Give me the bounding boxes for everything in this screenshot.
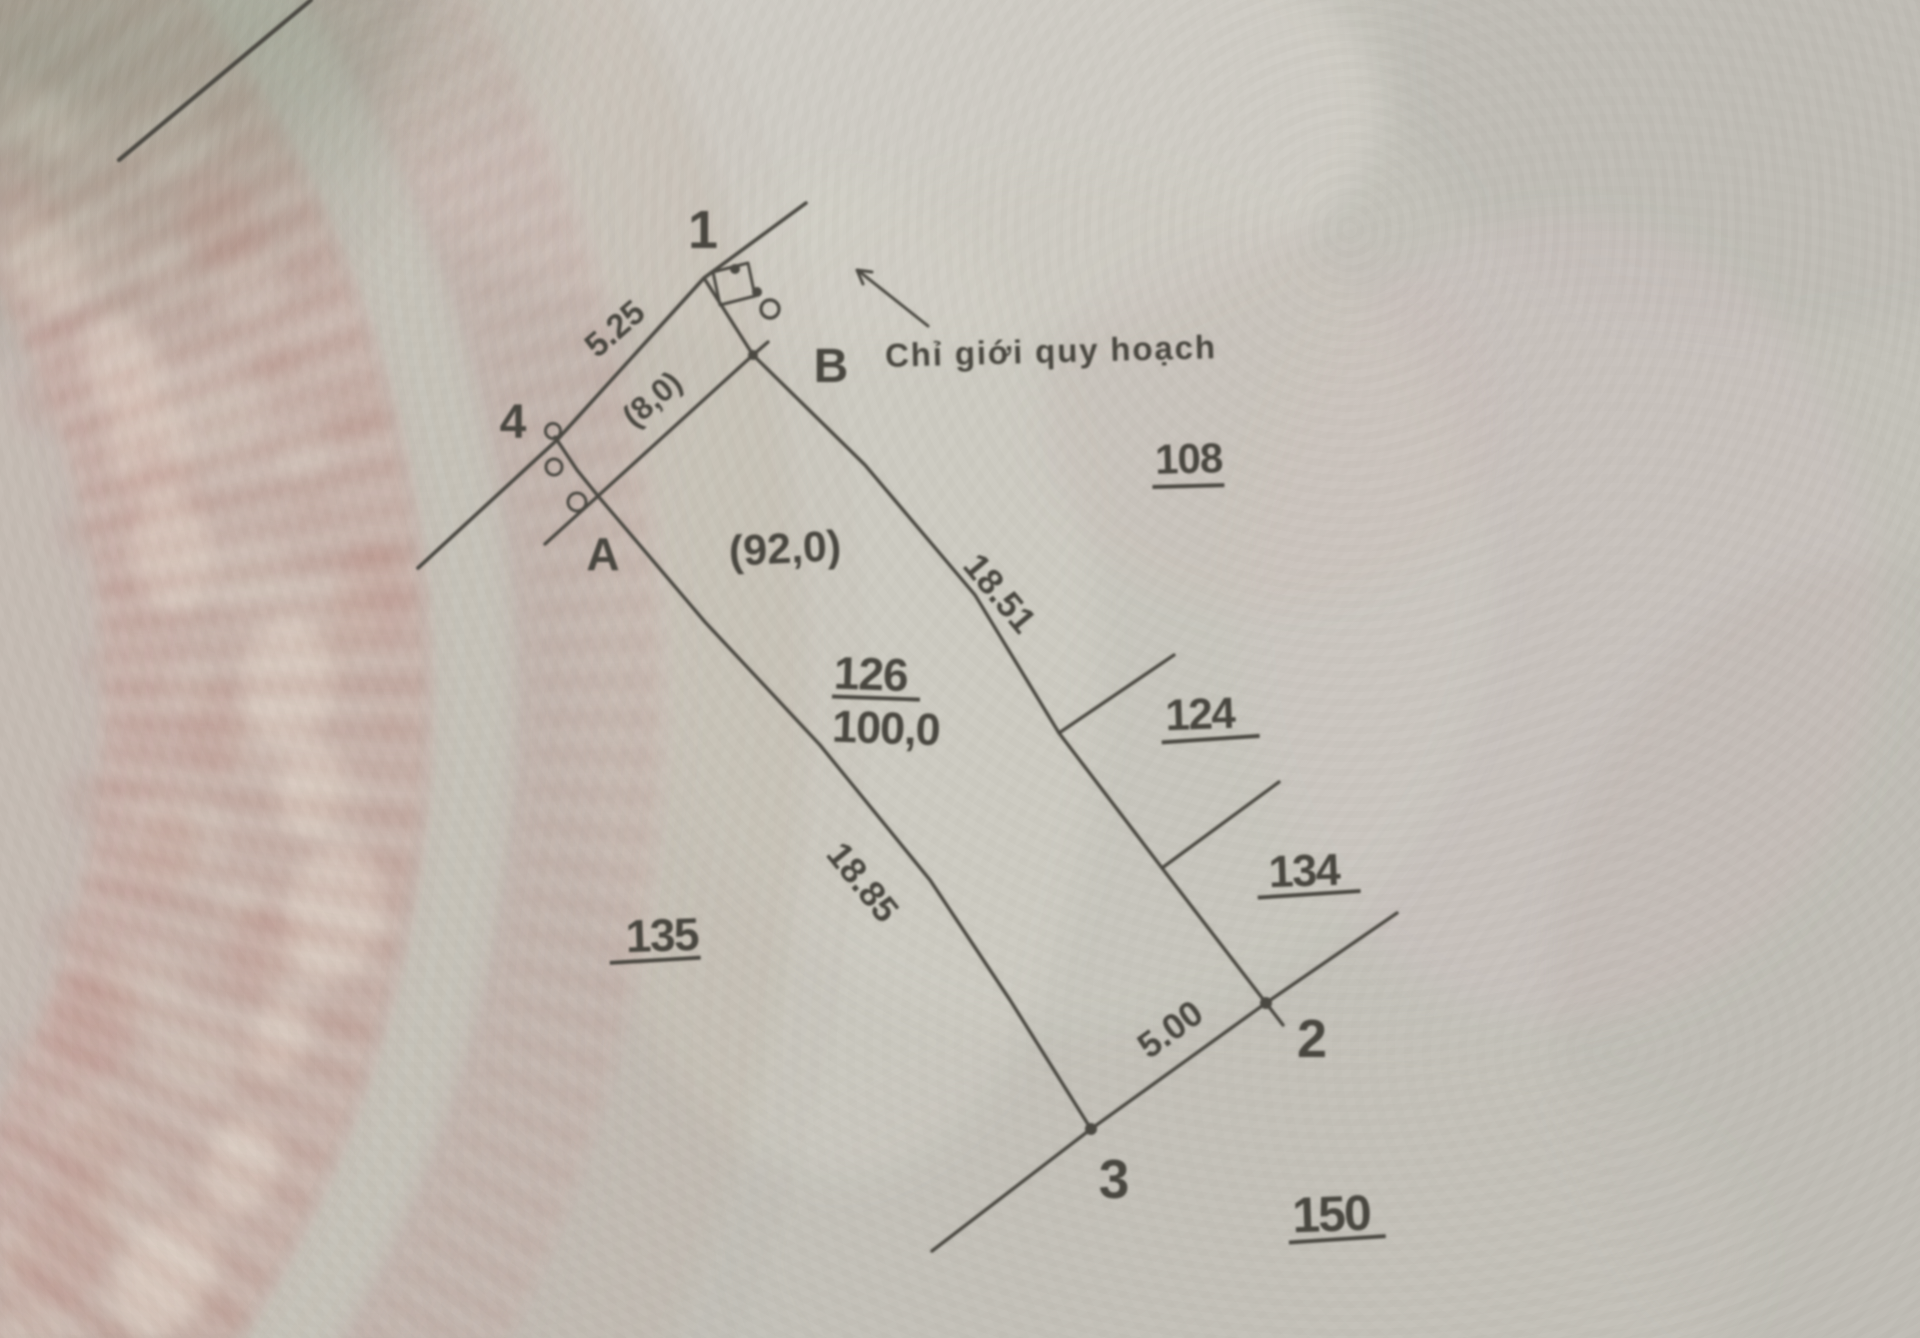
svg-text:18.85: 18.85 [819,834,908,930]
svg-text:135: 135 [625,908,700,963]
svg-text:4: 4 [500,396,527,449]
svg-text:2: 2 [1297,1009,1327,1069]
svg-text:5.00: 5.00 [1130,992,1211,1066]
svg-text:18.51: 18.51 [955,545,1044,640]
svg-text:Chỉ giới quy hoạch: Chỉ giới quy hoạch [885,328,1216,374]
svg-text:A: A [586,528,619,580]
svg-text:100,0: 100,0 [831,701,940,756]
svg-text:1: 1 [688,200,718,260]
svg-text:150: 150 [1291,1185,1371,1244]
svg-text:3: 3 [1099,1148,1130,1210]
svg-text:126: 126 [833,647,909,702]
svg-text:124: 124 [1165,689,1238,740]
svg-text:B: B [814,340,849,393]
svg-text:108: 108 [1155,434,1224,483]
svg-text:134: 134 [1268,844,1342,897]
svg-text:5.25: 5.25 [578,293,653,365]
svg-text:(92,0): (92,0) [728,522,843,576]
